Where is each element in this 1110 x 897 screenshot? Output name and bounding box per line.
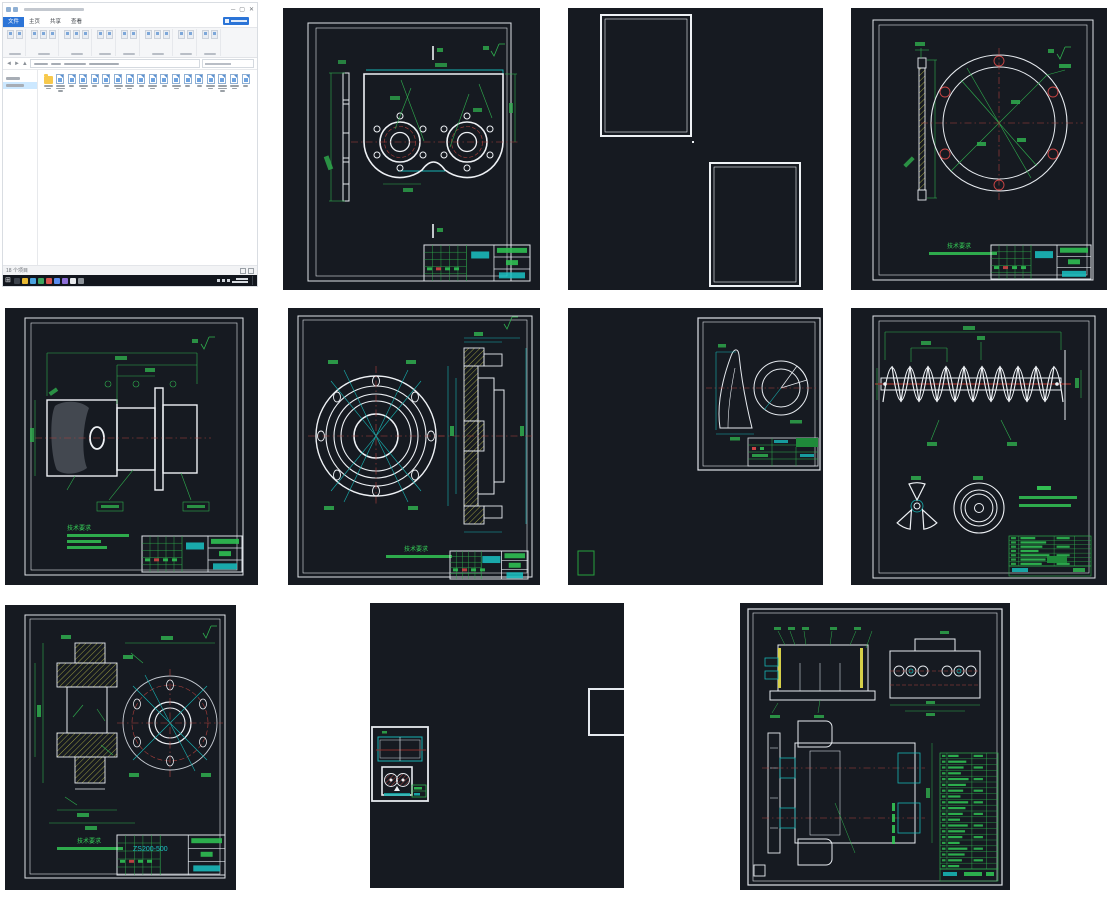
bom-table: [940, 753, 998, 869]
assembly-drawing: [740, 603, 1010, 890]
item-count: 18 个项目: [6, 267, 28, 274]
ribbon-button[interactable]: [178, 30, 185, 39]
ribbon-group[interactable]: [29, 29, 59, 56]
file-label: [218, 85, 227, 87]
ribbon-button[interactable]: [7, 30, 14, 39]
cam-profile: [716, 344, 754, 441]
taskbar-app-icon[interactable]: [22, 278, 28, 284]
file-item[interactable]: [206, 74, 215, 89]
dwg-file-icon: [230, 74, 238, 84]
forward-button[interactable]: ►: [14, 61, 20, 67]
file-item[interactable]: [67, 74, 76, 87]
technical-notes: [1019, 486, 1077, 507]
vertical-note: [892, 803, 895, 844]
file-label: [174, 88, 179, 90]
ribbon: [3, 28, 257, 58]
revision-box: [754, 865, 765, 876]
ribbon-group-label: [99, 53, 111, 56]
file-label: [150, 88, 155, 90]
ribbon-group[interactable]: [95, 29, 116, 56]
taskbar-icons: [14, 278, 84, 284]
ribbon-button[interactable]: [187, 30, 194, 39]
ribbon-group[interactable]: [119, 29, 140, 56]
ribbon-button[interactable]: [64, 30, 71, 39]
ribbon-button[interactable]: [31, 30, 38, 39]
svg-text:技术要求: 技术要求: [404, 545, 428, 553]
dwg-file-icon: [218, 74, 226, 84]
section-view: [438, 332, 534, 532]
ribbon-button[interactable]: [154, 30, 161, 39]
app-icon: [225, 19, 229, 23]
shaft-view: [35, 388, 211, 490]
file-item[interactable]: [90, 74, 99, 87]
dwg-file-icon: [79, 74, 87, 84]
file-item[interactable]: [79, 74, 88, 89]
file-label: [218, 88, 227, 90]
ribbon-button[interactable]: [145, 30, 152, 39]
file-label: [125, 85, 134, 87]
ribbon-group-label: [152, 53, 164, 56]
mini-assembly: [372, 727, 428, 801]
section-symbol-b: [954, 476, 1004, 533]
file-label: [148, 85, 157, 87]
ribbon-button[interactable]: [163, 30, 170, 39]
ribbon-button[interactable]: [130, 30, 137, 39]
ribbon-button[interactable]: [82, 30, 89, 39]
window-title: [24, 8, 84, 11]
tray-icon: [227, 279, 230, 282]
taskbar-app-icon[interactable]: [14, 278, 20, 284]
technical-notes: 技术要求: [929, 242, 997, 255]
shaft-drawing: 技术要求: [5, 308, 258, 585]
mini-title-block: [412, 785, 426, 797]
title-block: [424, 245, 530, 281]
tray-icon: [217, 279, 220, 282]
svg-text:技术要求: 技术要求: [947, 242, 971, 250]
file-label: [220, 90, 225, 92]
technical-notes: 技术要求: [57, 837, 123, 850]
maximize-button[interactable]: ▢: [239, 7, 245, 13]
ribbon-group[interactable]: [143, 29, 173, 56]
hub-section: [35, 635, 135, 830]
ribbon-group[interactable]: [62, 29, 92, 56]
gasket-drawing: 技术要求: [851, 8, 1107, 290]
empty-frames-drawing: [568, 8, 823, 290]
drawing-thumbnail-inset: [370, 603, 624, 888]
mini-title-block: [940, 869, 998, 881]
ribbon-button[interactable]: [106, 30, 113, 39]
file-label: [104, 85, 109, 87]
explorer-titlebar: ─ ▢ ✕: [3, 3, 257, 16]
ribbon-group-label: [38, 53, 50, 56]
file-label: [58, 90, 63, 92]
ribbon-group-label: [123, 53, 135, 56]
tab-home[interactable]: 主页: [24, 17, 45, 27]
drawing-thumbnail-empty-frames: [568, 8, 823, 290]
ribbon-button[interactable]: [73, 30, 80, 39]
thumb-view-icon[interactable]: [248, 268, 254, 274]
folder-icon: [6, 7, 11, 12]
file-label: [206, 85, 215, 87]
dwg-file-icon: [114, 74, 122, 84]
hub-drawing: 技术要求 ZS200-500: [5, 605, 236, 890]
dwg-file-icon: [207, 74, 215, 84]
file-label: [81, 88, 86, 90]
file-item[interactable]: [160, 74, 169, 87]
svg-text:技术要求: 技术要求: [77, 837, 101, 845]
mini-title-block: [748, 438, 818, 466]
tab-view[interactable]: 查看: [66, 17, 87, 27]
dwg-file-icon: [242, 74, 250, 84]
ribbon-button[interactable]: [121, 30, 128, 39]
folder-icon: [44, 76, 53, 84]
green-frame: [578, 551, 594, 575]
sidebar-item-selected[interactable]: [3, 82, 37, 89]
file-item[interactable]: [218, 74, 227, 92]
taskbar-app-icon[interactable]: [38, 278, 44, 284]
title-block: [117, 835, 225, 875]
dwg-file-icon: [102, 74, 110, 84]
dwg-file-icon: [172, 74, 180, 84]
file-item[interactable]: [102, 74, 111, 87]
drawing-thumbnail-shaft: 技术要求: [5, 308, 258, 585]
breadcrumb[interactable]: [30, 59, 200, 68]
dwg-file-icon: [195, 74, 203, 84]
drawing-thumbnail-flange-section: 技术要求: [288, 308, 540, 585]
file-label: [116, 88, 121, 90]
taskbar-app-icon[interactable]: [78, 278, 84, 284]
roughness-symbol-icon: [192, 337, 215, 349]
empty-frame-2: [710, 163, 800, 286]
empty-frame: [589, 689, 624, 735]
file-label: [56, 85, 65, 87]
drawing-thumbnail-hub: 技术要求 ZS200-500: [5, 605, 236, 890]
dwg-file-icon: [149, 74, 157, 84]
file-label: [197, 85, 202, 87]
plan-view: [762, 721, 932, 865]
ribbon-group-label: [9, 53, 21, 56]
technical-notes: 技术要求: [67, 524, 129, 549]
dwg-file-icon: [56, 74, 64, 84]
start-button[interactable]: ⊞: [5, 277, 11, 284]
file-label: [243, 85, 248, 87]
ribbon-button[interactable]: [211, 30, 218, 39]
roughness-symbol-icon: [483, 44, 505, 56]
file-item[interactable]: [241, 74, 250, 87]
file-item[interactable]: [125, 74, 134, 89]
file-list: [38, 70, 257, 265]
drawing-thumbnail-cover-plate: [283, 8, 540, 290]
file-item[interactable]: [230, 74, 239, 89]
taskbar: ⊞: [3, 275, 257, 286]
file-item[interactable]: [137, 74, 146, 87]
drawing-thumbnail-gasket: 技术要求: [851, 8, 1107, 290]
drawing-number: ZS200-500: [133, 846, 168, 853]
file-label: [79, 85, 88, 87]
dwg-file-icon: [137, 74, 145, 84]
ribbon-button[interactable]: [97, 30, 104, 39]
up-button[interactable]: ▲: [22, 61, 28, 67]
tab-file[interactable]: 文件: [3, 17, 24, 27]
section-symbol-a: [896, 476, 939, 531]
auger-view: [875, 350, 1071, 420]
technical-notes: 技术要求: [386, 545, 452, 558]
dwg-file-icon: [91, 74, 99, 84]
dwg-file-icon: [160, 74, 168, 84]
sidebar-item[interactable]: [3, 75, 37, 82]
file-item[interactable]: [148, 74, 157, 89]
ribbon-button[interactable]: [49, 30, 56, 39]
flange-section-drawing: 技术要求: [288, 308, 540, 585]
cam-drawing: [568, 308, 823, 585]
auger-drawing: [851, 308, 1107, 585]
dwg-file-icon: [184, 74, 192, 84]
front-view: [308, 360, 444, 510]
file-item[interactable]: [183, 74, 192, 87]
svg-text:技术要求: 技术要求: [67, 524, 91, 532]
ribbon-group[interactable]: [5, 29, 26, 56]
side-section: [903, 42, 937, 200]
folder-item[interactable]: [44, 74, 53, 89]
file-item[interactable]: [56, 74, 65, 92]
file-label: [44, 85, 53, 87]
dwg-file-icon: [126, 74, 134, 84]
file-explorer-screenshot: ─ ▢ ✕ 文件 主页 共享 查看 ◄ ► ▲: [2, 2, 258, 287]
file-item[interactable]: [195, 74, 204, 87]
ribbon-group-label: [204, 53, 216, 56]
minimize-button[interactable]: ─: [231, 7, 235, 13]
tray-icon: [222, 279, 225, 282]
file-label: [139, 85, 144, 87]
file-label: [56, 88, 65, 90]
drawing-thumbnail-cam: [568, 308, 823, 585]
file-label: [69, 85, 74, 87]
taskbar-app-icon[interactable]: [30, 278, 36, 284]
front-view: [921, 48, 1083, 200]
roughness-symbol-icon: [203, 626, 217, 638]
taskbar-app-icon[interactable]: [62, 278, 68, 284]
file-label: [127, 88, 132, 90]
taskbar-app-icon[interactable]: [54, 278, 60, 284]
ribbon-blue-badge[interactable]: [223, 17, 249, 25]
file-label: [46, 88, 51, 90]
list-view-icon[interactable]: [240, 268, 246, 274]
taskbar-app-icon[interactable]: [70, 278, 76, 284]
file-label: [162, 85, 167, 87]
ribbon-group-label: [71, 53, 83, 56]
file-item[interactable]: [114, 74, 123, 89]
gearbox-front-view: [890, 631, 980, 716]
taskbar-app-icon[interactable]: [46, 278, 52, 284]
ring-view: [754, 361, 808, 424]
show-desktop-button[interactable]: [252, 276, 255, 285]
empty-frame-1: [601, 15, 691, 136]
ribbon-group[interactable]: [200, 29, 221, 56]
close-button[interactable]: ✕: [249, 7, 254, 13]
roughness-symbol-icon: [1048, 47, 1071, 59]
system-tray[interactable]: [217, 276, 255, 285]
ribbon-group[interactable]: [176, 29, 197, 56]
dwg-file-icon: [68, 74, 76, 84]
title-block: [991, 245, 1091, 279]
back-button[interactable]: ◄: [6, 61, 12, 67]
ribbon-button[interactable]: [40, 30, 47, 39]
ribbon-group-label: [180, 53, 192, 56]
roughness-symbol-icon: [504, 317, 518, 329]
file-label: [185, 85, 190, 87]
side-view: [343, 73, 349, 201]
flange-view: [117, 636, 223, 777]
title-block: [450, 551, 528, 579]
ribbon-button[interactable]: [202, 30, 209, 39]
file-label: [232, 88, 237, 90]
ribbon-tabs: 文件 主页 共享 查看: [3, 16, 257, 28]
drawing-thumbnail-auger: [851, 308, 1107, 585]
front-view: [351, 70, 519, 178]
side-section-view: [765, 627, 875, 718]
file-label: [114, 85, 123, 87]
file-item[interactable]: [172, 74, 181, 89]
quick-access-toolbar[interactable]: [6, 7, 18, 12]
file-label: [230, 85, 239, 87]
title-block: [142, 536, 242, 572]
ribbon-button[interactable]: [16, 30, 23, 39]
status-bar: 18 个项目: [3, 265, 257, 275]
tab-share[interactable]: 共享: [45, 17, 66, 27]
inset-drawing: [370, 603, 624, 888]
taskbar-clock: [232, 278, 248, 283]
file-label: [208, 88, 213, 90]
file-label: [92, 85, 97, 87]
file-label: [172, 85, 181, 87]
screenshot-montage: ─ ▢ ✕ 文件 主页 共享 查看 ◄ ► ▲: [0, 0, 1110, 897]
chevron-down-icon: [13, 7, 18, 12]
search-input[interactable]: [202, 59, 254, 68]
address-bar: ◄ ► ▲: [3, 58, 257, 70]
navigation-pane: [3, 70, 38, 265]
drawing-thumbnail-assembly: [740, 603, 1010, 890]
cover-plate-drawing: [283, 8, 540, 290]
